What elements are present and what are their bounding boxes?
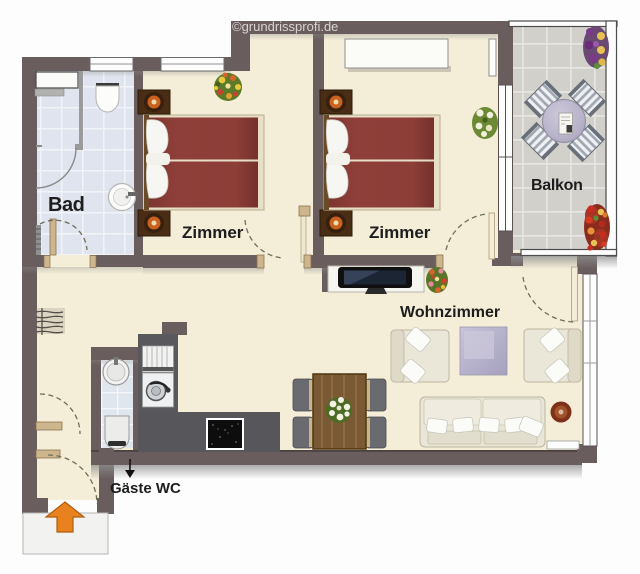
svg-text:Zimmer: Zimmer: [369, 223, 431, 242]
svg-text:Bad: Bad: [48, 194, 84, 216]
svg-text:©grundrissprofi.de: ©grundrissprofi.de: [232, 19, 338, 34]
svg-text:Balkon: Balkon: [531, 177, 583, 194]
svg-text:Gäste WC: Gäste WC: [110, 480, 181, 497]
svg-text:Wohnzimmer: Wohnzimmer: [400, 304, 500, 321]
svg-text:Zimmer: Zimmer: [182, 223, 244, 242]
